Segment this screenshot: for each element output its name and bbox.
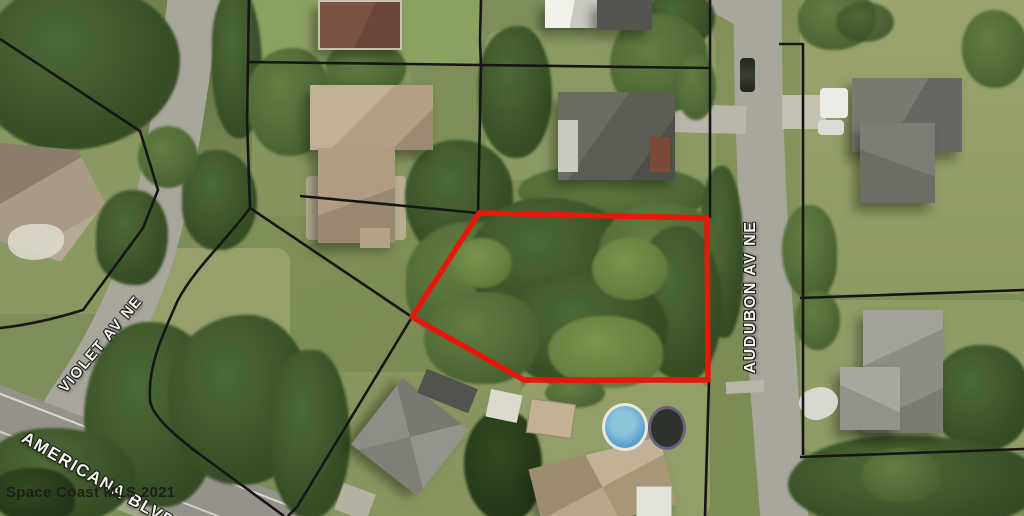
boundary-layer [0,0,1024,516]
street-label-audubon: AUDUBON AV NE [742,202,760,392]
boundary-line [250,208,412,317]
boundary-line [705,382,709,516]
mls-watermark: Space Coast MLS 2021 [6,484,175,501]
parcel-boundary-lines [0,0,1024,516]
boundary-line [247,0,250,208]
boundary-line [800,449,1024,457]
boundary-line [288,317,412,516]
boundary-line [150,208,284,516]
boundary-line [249,62,710,68]
boundary-line [779,44,803,455]
boundary-line [300,196,478,213]
boundary-line [0,39,158,328]
subject-parcel-outline [412,213,708,380]
aerial-parcel-photo: VIOLET AV NE AMERICANA BLVD NE AUDUBON A… [0,0,1024,516]
boundary-line [478,0,481,213]
boundary-line [800,290,1024,298]
